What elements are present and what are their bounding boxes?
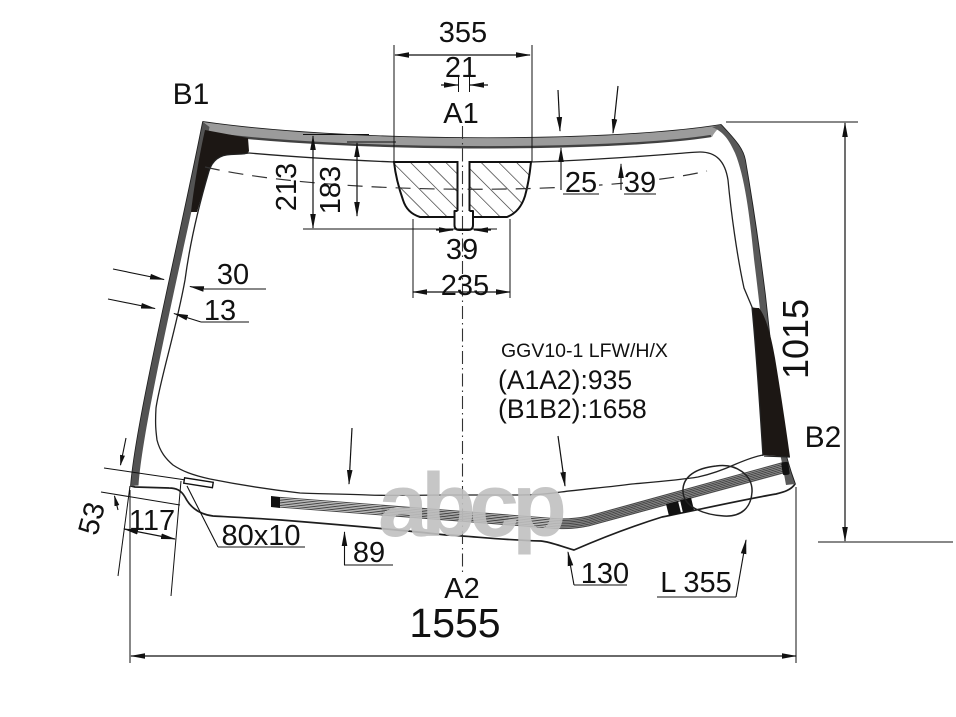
svg-text:117: 117	[129, 505, 175, 537]
svg-text:183: 183	[315, 166, 347, 214]
svg-text:1555: 1555	[409, 600, 500, 646]
svg-text:30: 30	[217, 259, 249, 291]
svg-text:B1: B1	[173, 78, 210, 111]
svg-text:(B1B2):1658: (B1B2):1658	[498, 394, 647, 424]
svg-text:235: 235	[441, 270, 489, 302]
svg-text:B2: B2	[805, 421, 842, 454]
svg-text:(A1A2):935: (A1A2):935	[498, 365, 632, 395]
svg-text:abcp: abcp	[378, 456, 564, 556]
svg-text:L 355: L 355	[660, 567, 732, 599]
svg-text:213: 213	[271, 163, 303, 211]
svg-text:GGV10-1 LFW/H/X: GGV10-1 LFW/H/X	[501, 340, 668, 362]
svg-text:355: 355	[439, 17, 487, 49]
svg-text:1015: 1015	[775, 299, 816, 379]
svg-text:A1: A1	[443, 98, 478, 130]
svg-text:21: 21	[445, 52, 477, 84]
svg-text:39: 39	[446, 234, 478, 266]
